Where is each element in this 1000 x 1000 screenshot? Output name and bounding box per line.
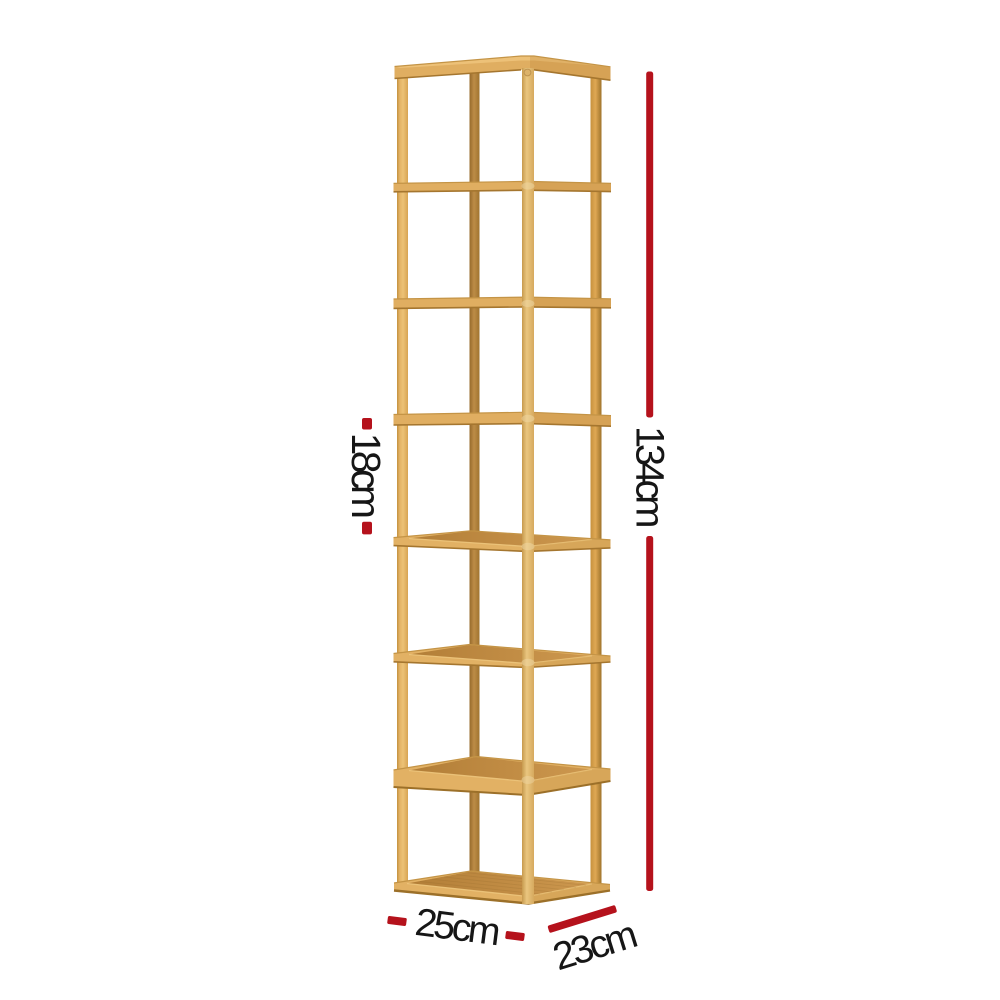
svg-text:18cm: 18cm: [343, 433, 389, 517]
svg-text:134cm: 134cm: [628, 426, 672, 526]
svg-text:25cm: 25cm: [413, 901, 501, 954]
